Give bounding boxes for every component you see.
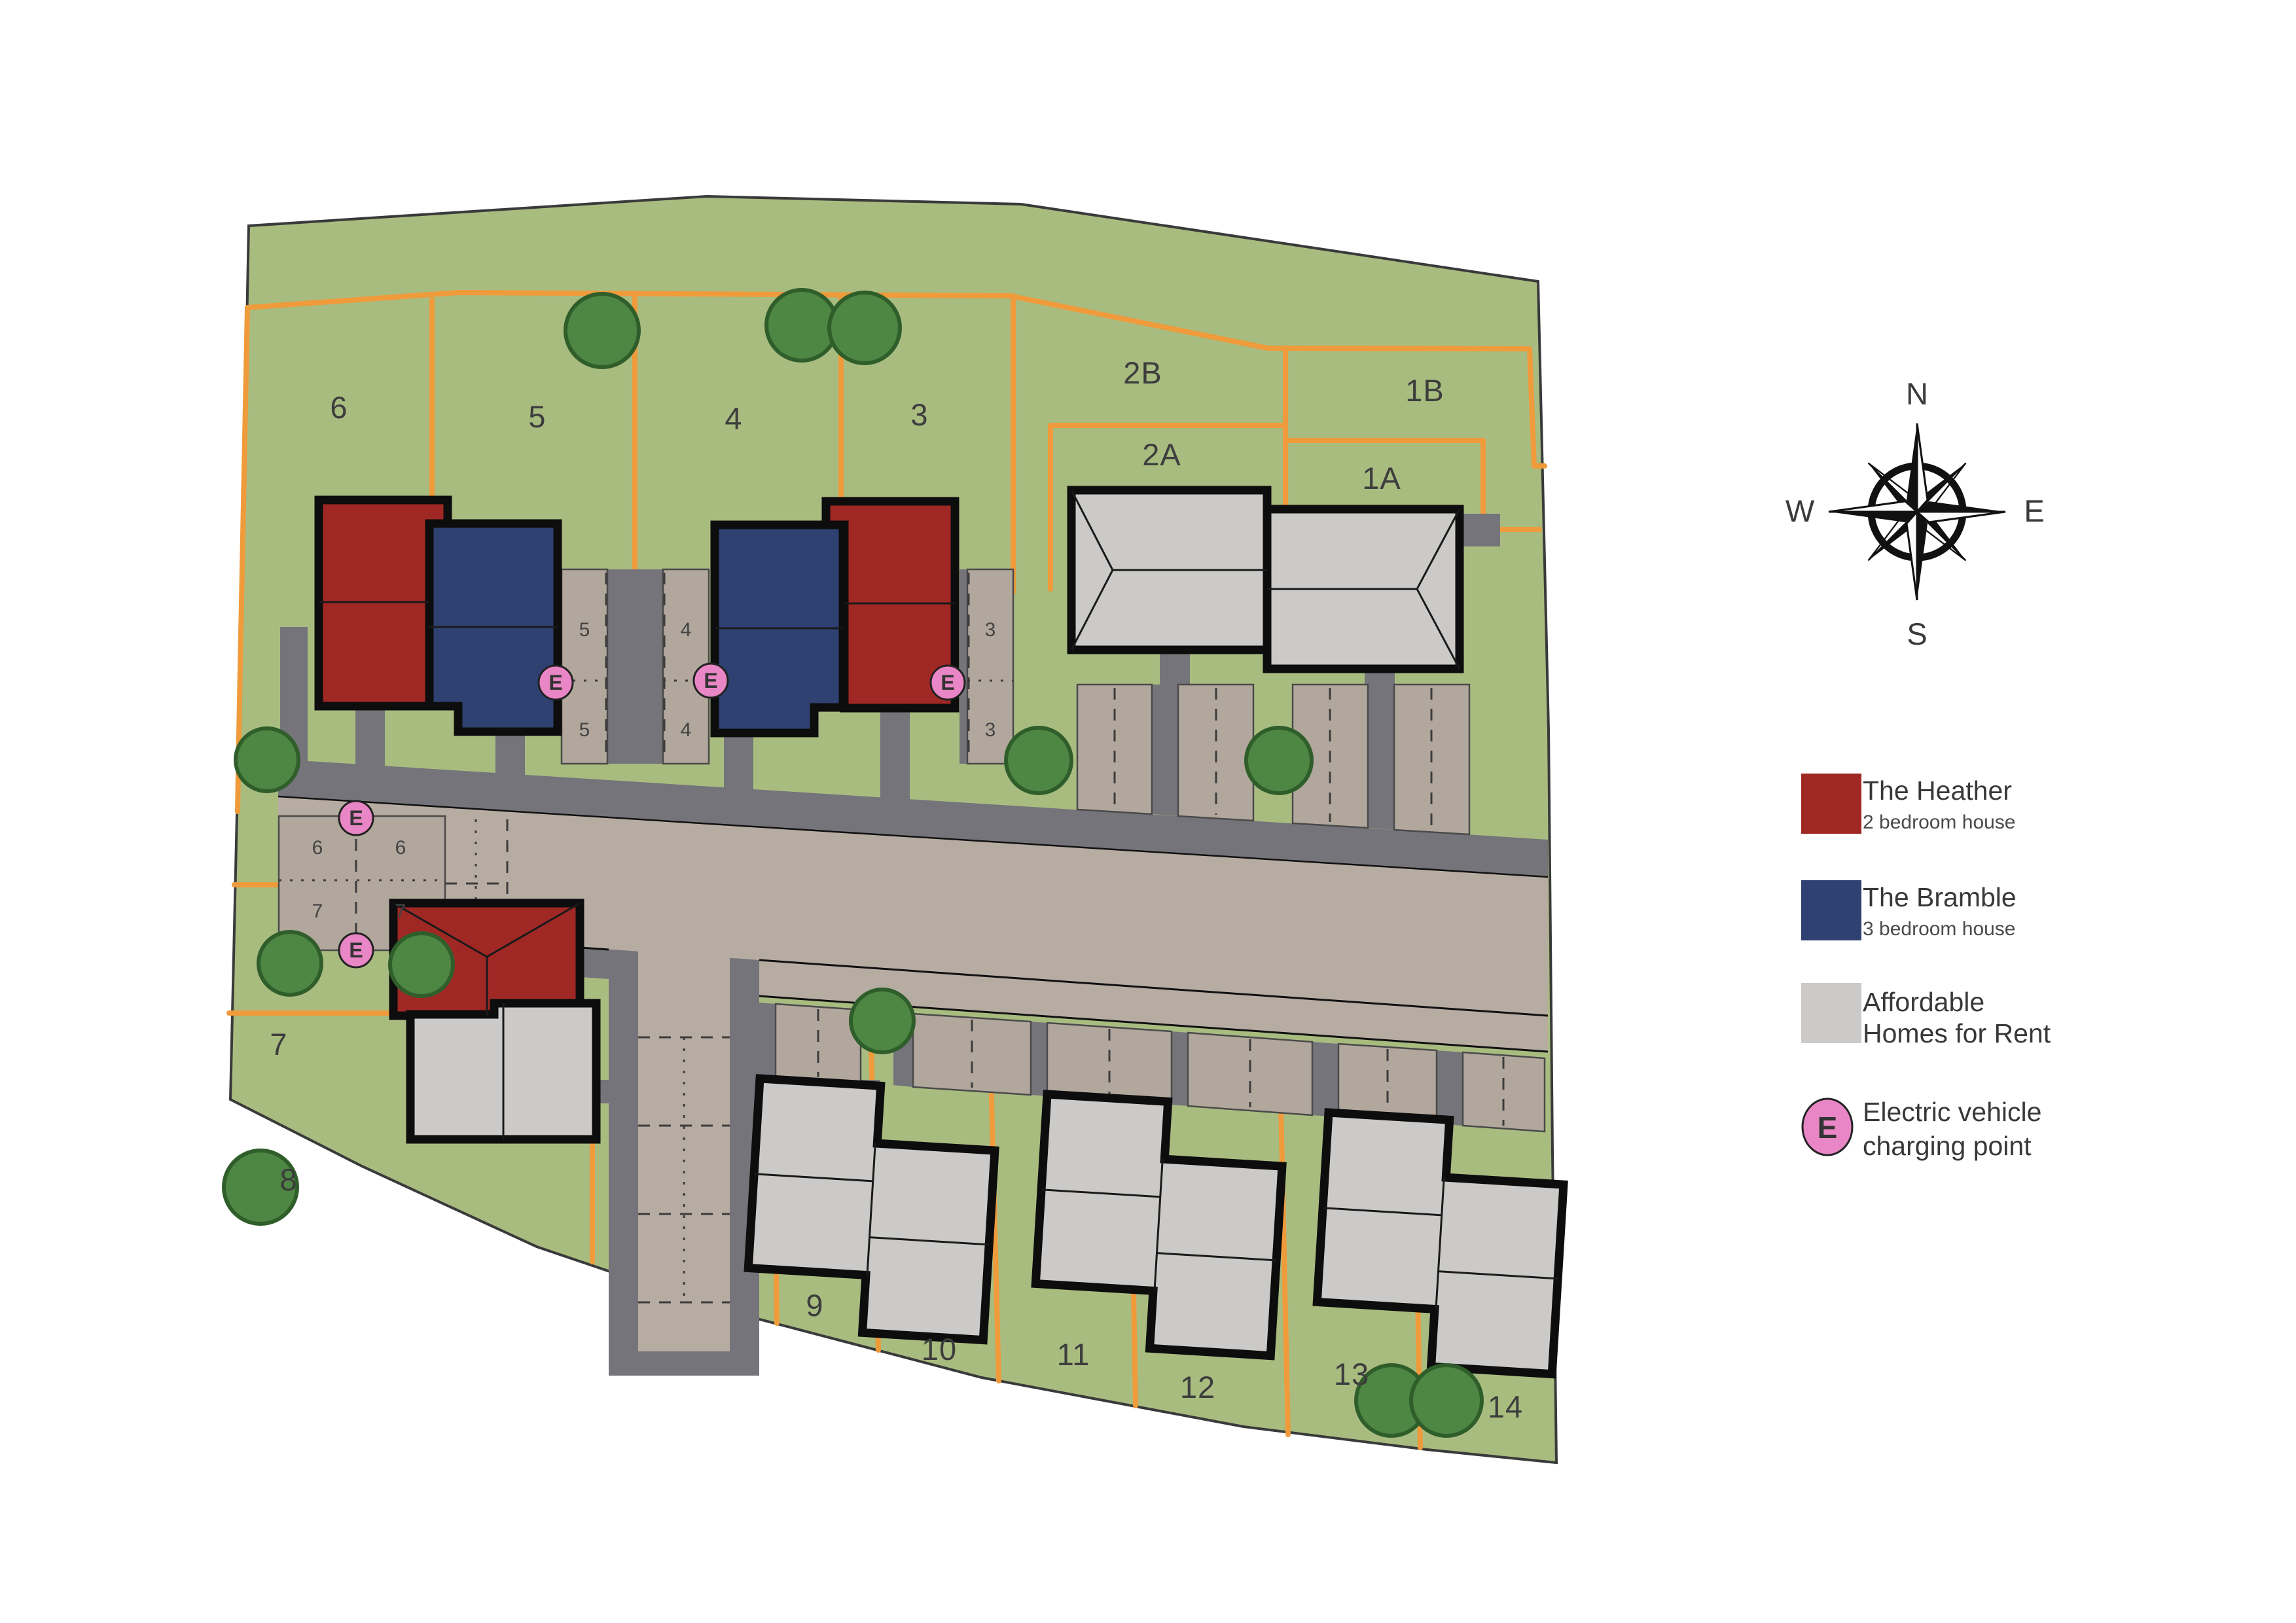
legend-title-affordable-line1: Affordable: [1863, 987, 1984, 1017]
tree: [565, 294, 639, 367]
bay-divider-strip: [1437, 1050, 1463, 1126]
bay-divider-strip: [607, 569, 663, 764]
legend-subtitle-bramble: 3 bedroom house: [1863, 918, 2016, 940]
bay-divider-strip: [759, 1003, 776, 1077]
parking-space-label-7: 7: [312, 901, 323, 922]
bay-divider-strip: [1368, 685, 1394, 830]
bay-divider-strip: [1172, 1031, 1188, 1106]
parking-space-label-6: 6: [312, 837, 323, 859]
plot-label-6: 6: [330, 390, 348, 425]
plot-label-3: 3: [910, 397, 928, 432]
legend-swatch-heather: [1801, 774, 1861, 834]
plot-label-10: 10: [922, 1332, 957, 1366]
tree: [259, 932, 321, 995]
plot-label-8: 8: [279, 1162, 297, 1197]
legend-title-affordable-line2: Homes for Rent: [1863, 1018, 2051, 1048]
plot-label-2B: 2B: [1123, 355, 1162, 390]
driveway-stub: [495, 732, 525, 776]
parking-space-label-3: 3: [985, 619, 996, 641]
bay-divider-strip: [1152, 685, 1178, 816]
tree: [851, 990, 914, 1052]
plot-label-13: 13: [1334, 1357, 1369, 1391]
tree: [390, 933, 453, 996]
parking-space-label-4: 4: [681, 719, 692, 741]
plot-label-5: 5: [528, 399, 546, 434]
legend-title-bramble: The Bramble: [1863, 882, 2017, 912]
compass-west-label: W: [1785, 493, 1815, 528]
plot-label-1B: 1B: [1405, 373, 1444, 408]
plot-label-1A: 1A: [1362, 461, 1401, 495]
parking-space-label-4: 4: [681, 619, 692, 641]
parking-space-label-6: 6: [395, 837, 406, 859]
bay-divider-strip: [1312, 1042, 1338, 1117]
plot-label-11: 11: [1057, 1337, 1090, 1372]
legend-subtitle-heather: 2 bedroom house: [1863, 811, 2016, 833]
footpath-stub: [1460, 514, 1500, 546]
plot-label-4: 4: [725, 401, 742, 436]
tree: [1411, 1365, 1482, 1436]
driveway-stub: [355, 706, 385, 766]
compass-south-label: S: [1907, 616, 1927, 651]
ev-charging-point-letter: E: [349, 938, 363, 962]
plot-label-12: 12: [1180, 1370, 1215, 1404]
curb-lane-end: [609, 1348, 759, 1376]
legend-ev-letter: E: [1818, 1111, 1838, 1145]
tree: [829, 293, 900, 363]
plot-label-14: 14: [1488, 1389, 1523, 1424]
tree: [236, 728, 298, 791]
driveway-stub: [580, 950, 609, 974]
parking-space-label-7: 7: [395, 901, 406, 922]
driveway-stub: [724, 733, 753, 791]
compass-east-label: E: [2024, 493, 2044, 528]
ev-charging-point-letter: E: [704, 669, 717, 692]
parking-space-label-3: 3: [985, 719, 996, 741]
legend-title-heather: The Heather: [1863, 776, 2012, 806]
compass-north-label: N: [1906, 376, 1928, 411]
legend-swatch-bramble: [1801, 880, 1861, 940]
tree: [1006, 728, 1071, 793]
plot-label-7: 7: [270, 1027, 287, 1061]
ev-charging-point-letter: E: [349, 806, 363, 830]
compass-rose: N E S W: [1785, 376, 2045, 651]
driveway-stub: [880, 708, 910, 800]
plot-label-9: 9: [806, 1288, 823, 1323]
driveway-stub: [1160, 650, 1190, 687]
legend-swatch-affordable: [1801, 983, 1861, 1043]
bay-divider-strip: [1031, 1022, 1047, 1096]
tree: [1246, 728, 1312, 793]
site-plan: EEEEE554433667765432B1B2A1A7891011121314: [224, 196, 1567, 1463]
legend-title-ev-line1: Electric vehicle: [1863, 1097, 2041, 1127]
legend: The Heather 2 bedroom house The Bramble …: [1801, 774, 2051, 1161]
ev-charging-point-letter: E: [941, 671, 954, 694]
ev-charging-point-letter: E: [548, 671, 562, 694]
tree: [766, 290, 837, 361]
legend-title-ev-line2: charging point: [1863, 1131, 2032, 1161]
parking-space-label-5: 5: [579, 619, 590, 641]
parking-space-label-5: 5: [579, 719, 590, 741]
plot-label-2A: 2A: [1142, 437, 1181, 472]
